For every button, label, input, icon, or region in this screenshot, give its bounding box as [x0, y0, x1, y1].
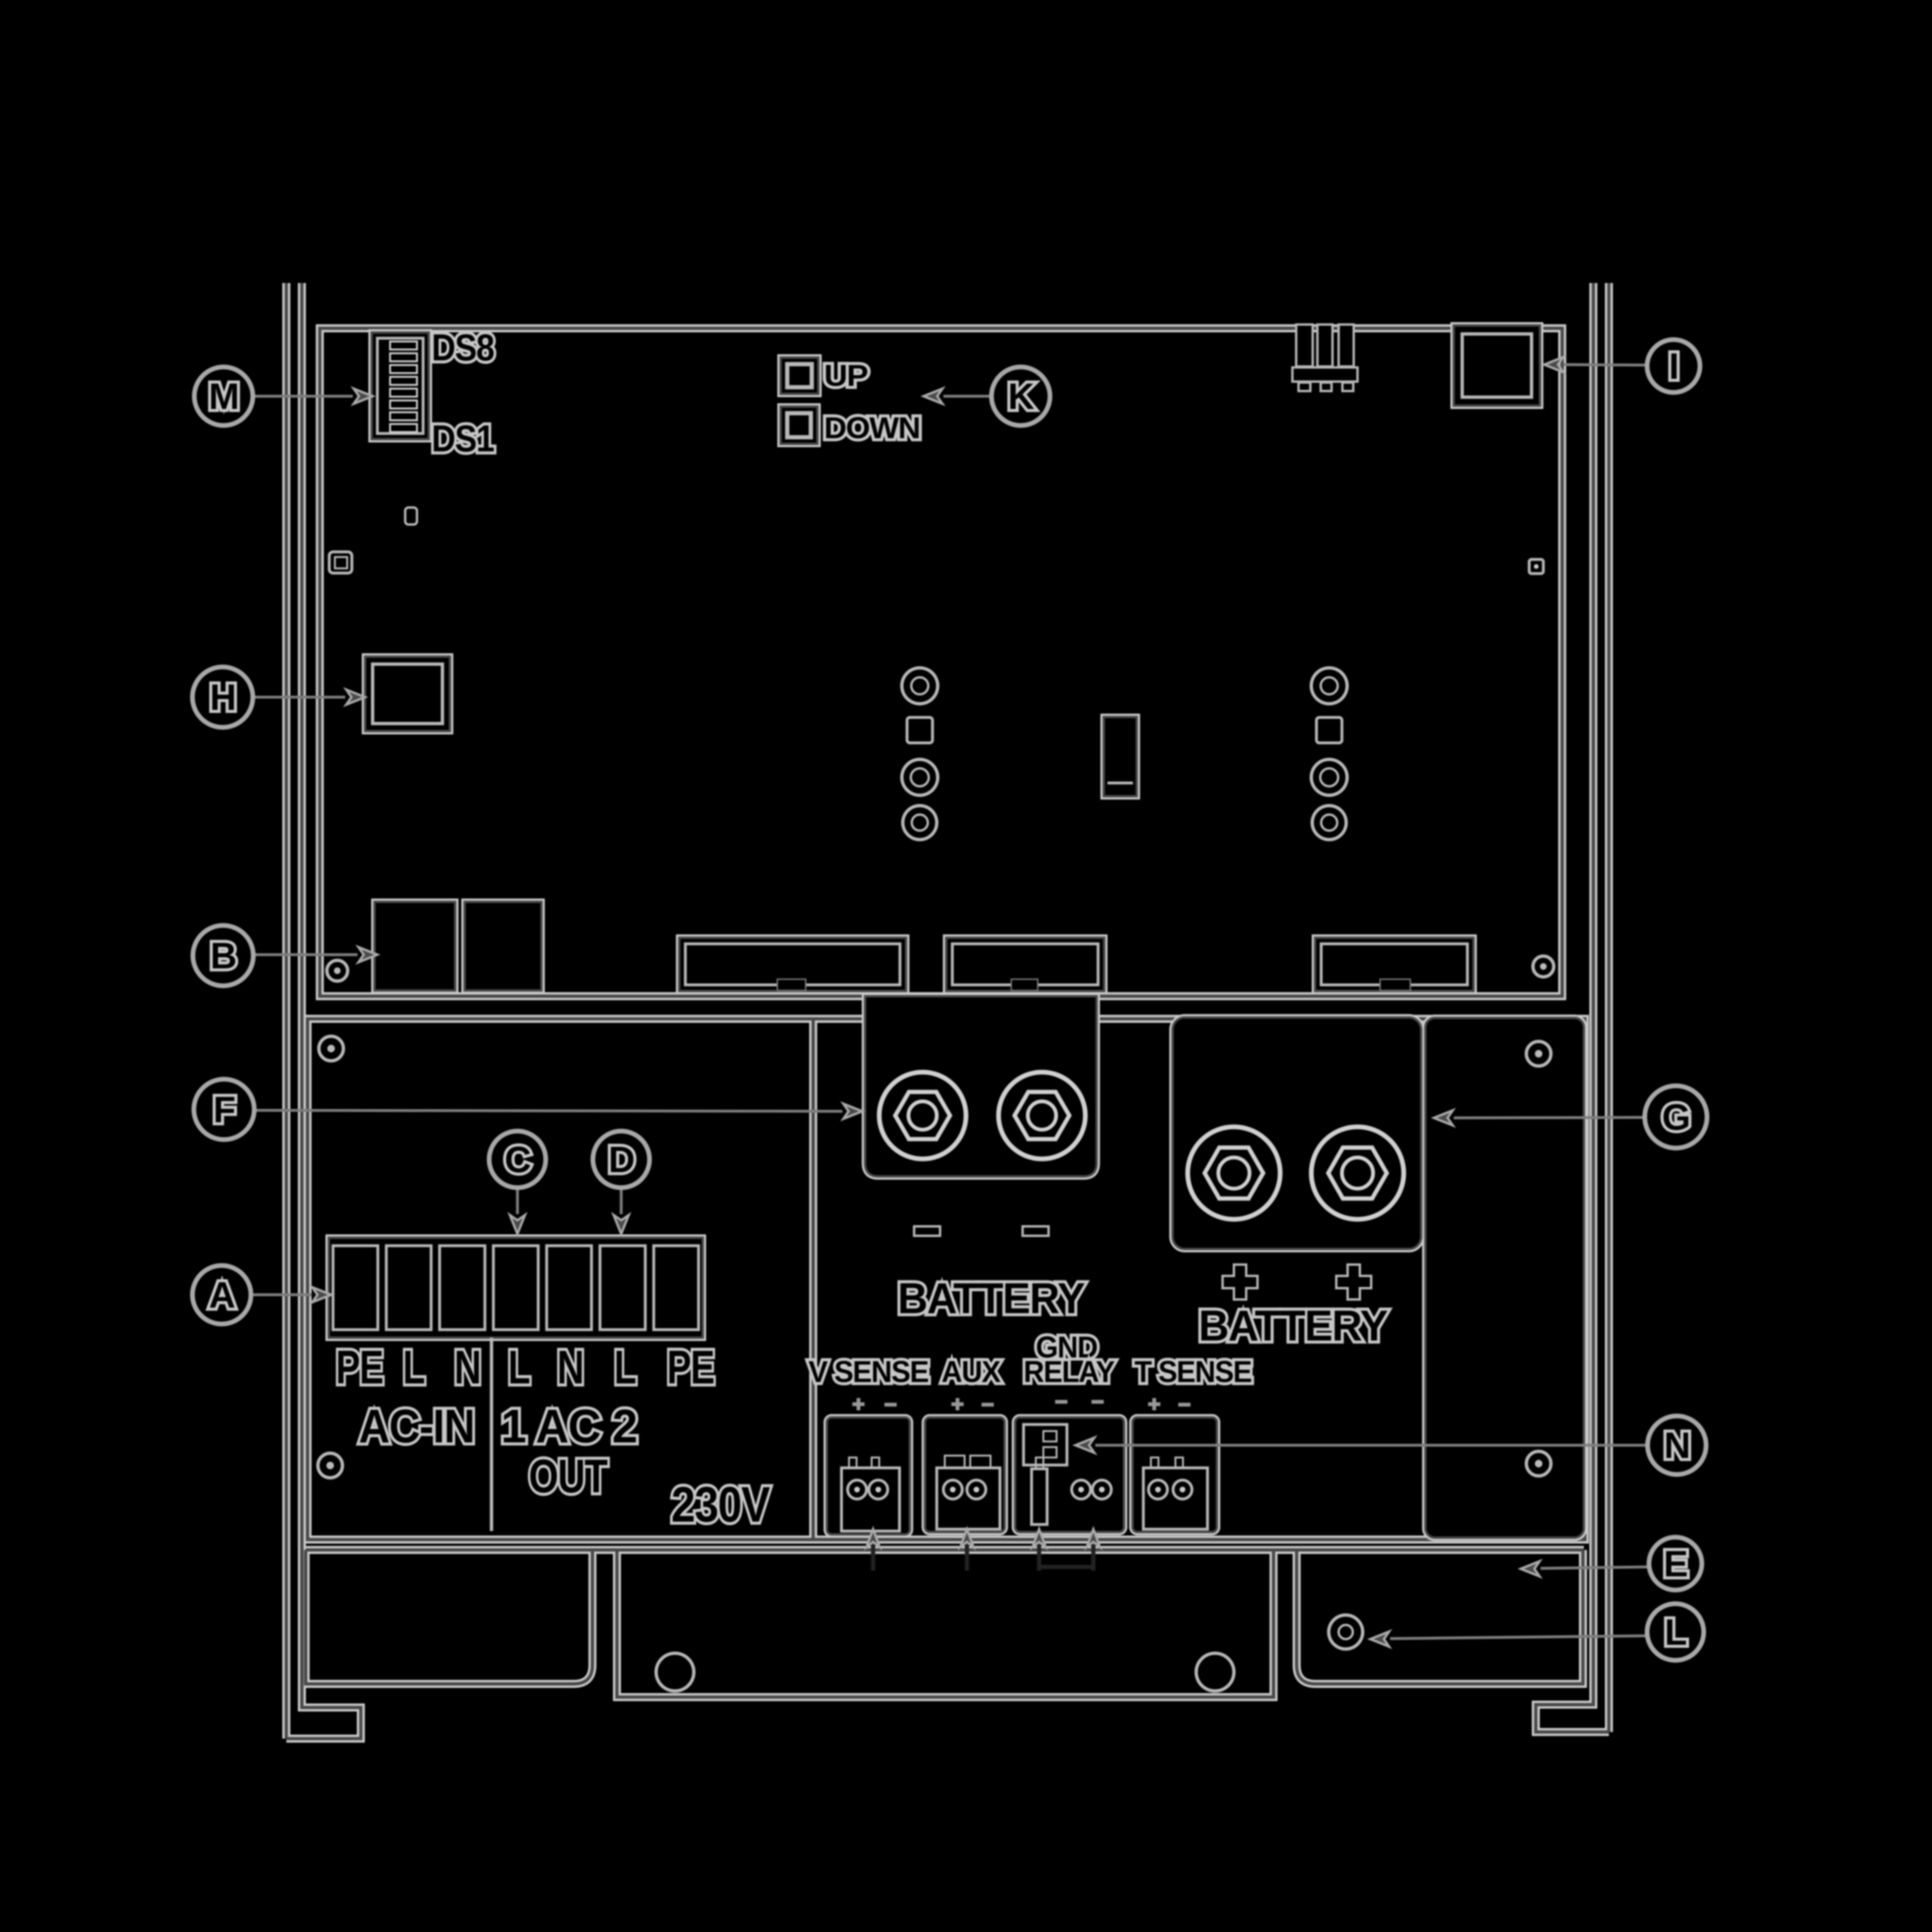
- svg-text:H: H: [210, 676, 235, 718]
- svg-text:G: G: [1662, 1096, 1690, 1138]
- svg-text:N: N: [557, 1341, 583, 1394]
- svg-text:DS1: DS1: [432, 417, 494, 459]
- svg-text:A: A: [209, 1274, 235, 1316]
- svg-text:PE: PE: [336, 1341, 383, 1394]
- svg-text:N: N: [454, 1341, 481, 1394]
- svg-text:I: I: [1669, 345, 1678, 387]
- svg-text:N: N: [1664, 1424, 1690, 1466]
- svg-text:T SENSE: T SENSE: [1134, 1355, 1251, 1389]
- svg-text:OUT: OUT: [529, 1450, 608, 1503]
- svg-text:L: L: [614, 1341, 636, 1394]
- svg-text:F: F: [213, 1089, 235, 1130]
- svg-text:E: E: [1664, 1543, 1687, 1584]
- svg-text:PE: PE: [667, 1341, 714, 1394]
- svg-text:K: K: [1008, 375, 1034, 417]
- svg-text:L: L: [508, 1341, 530, 1394]
- svg-text:M: M: [209, 375, 239, 417]
- svg-text:BATTERY: BATTERY: [898, 1274, 1085, 1323]
- svg-text:L: L: [403, 1341, 425, 1394]
- svg-text:B: B: [210, 935, 236, 976]
- svg-text:1 AC 2: 1 AC 2: [501, 1400, 637, 1453]
- svg-text:D: D: [608, 1139, 634, 1180]
- svg-text:C: C: [505, 1139, 531, 1180]
- svg-text:L: L: [1665, 1611, 1686, 1653]
- svg-text:230V: 230V: [671, 1477, 770, 1532]
- svg-text:UP: UP: [824, 358, 867, 392]
- svg-text:V SENSE: V SENSE: [808, 1355, 928, 1389]
- svg-text:AC-IN: AC-IN: [359, 1400, 475, 1453]
- svg-text:RELAY: RELAY: [1024, 1355, 1115, 1389]
- svg-text:DOWN: DOWN: [824, 411, 920, 445]
- svg-text:DS8: DS8: [432, 326, 494, 368]
- svg-text:BATTERY: BATTERY: [1199, 1302, 1388, 1350]
- svg-text:AUX: AUX: [941, 1355, 1001, 1389]
